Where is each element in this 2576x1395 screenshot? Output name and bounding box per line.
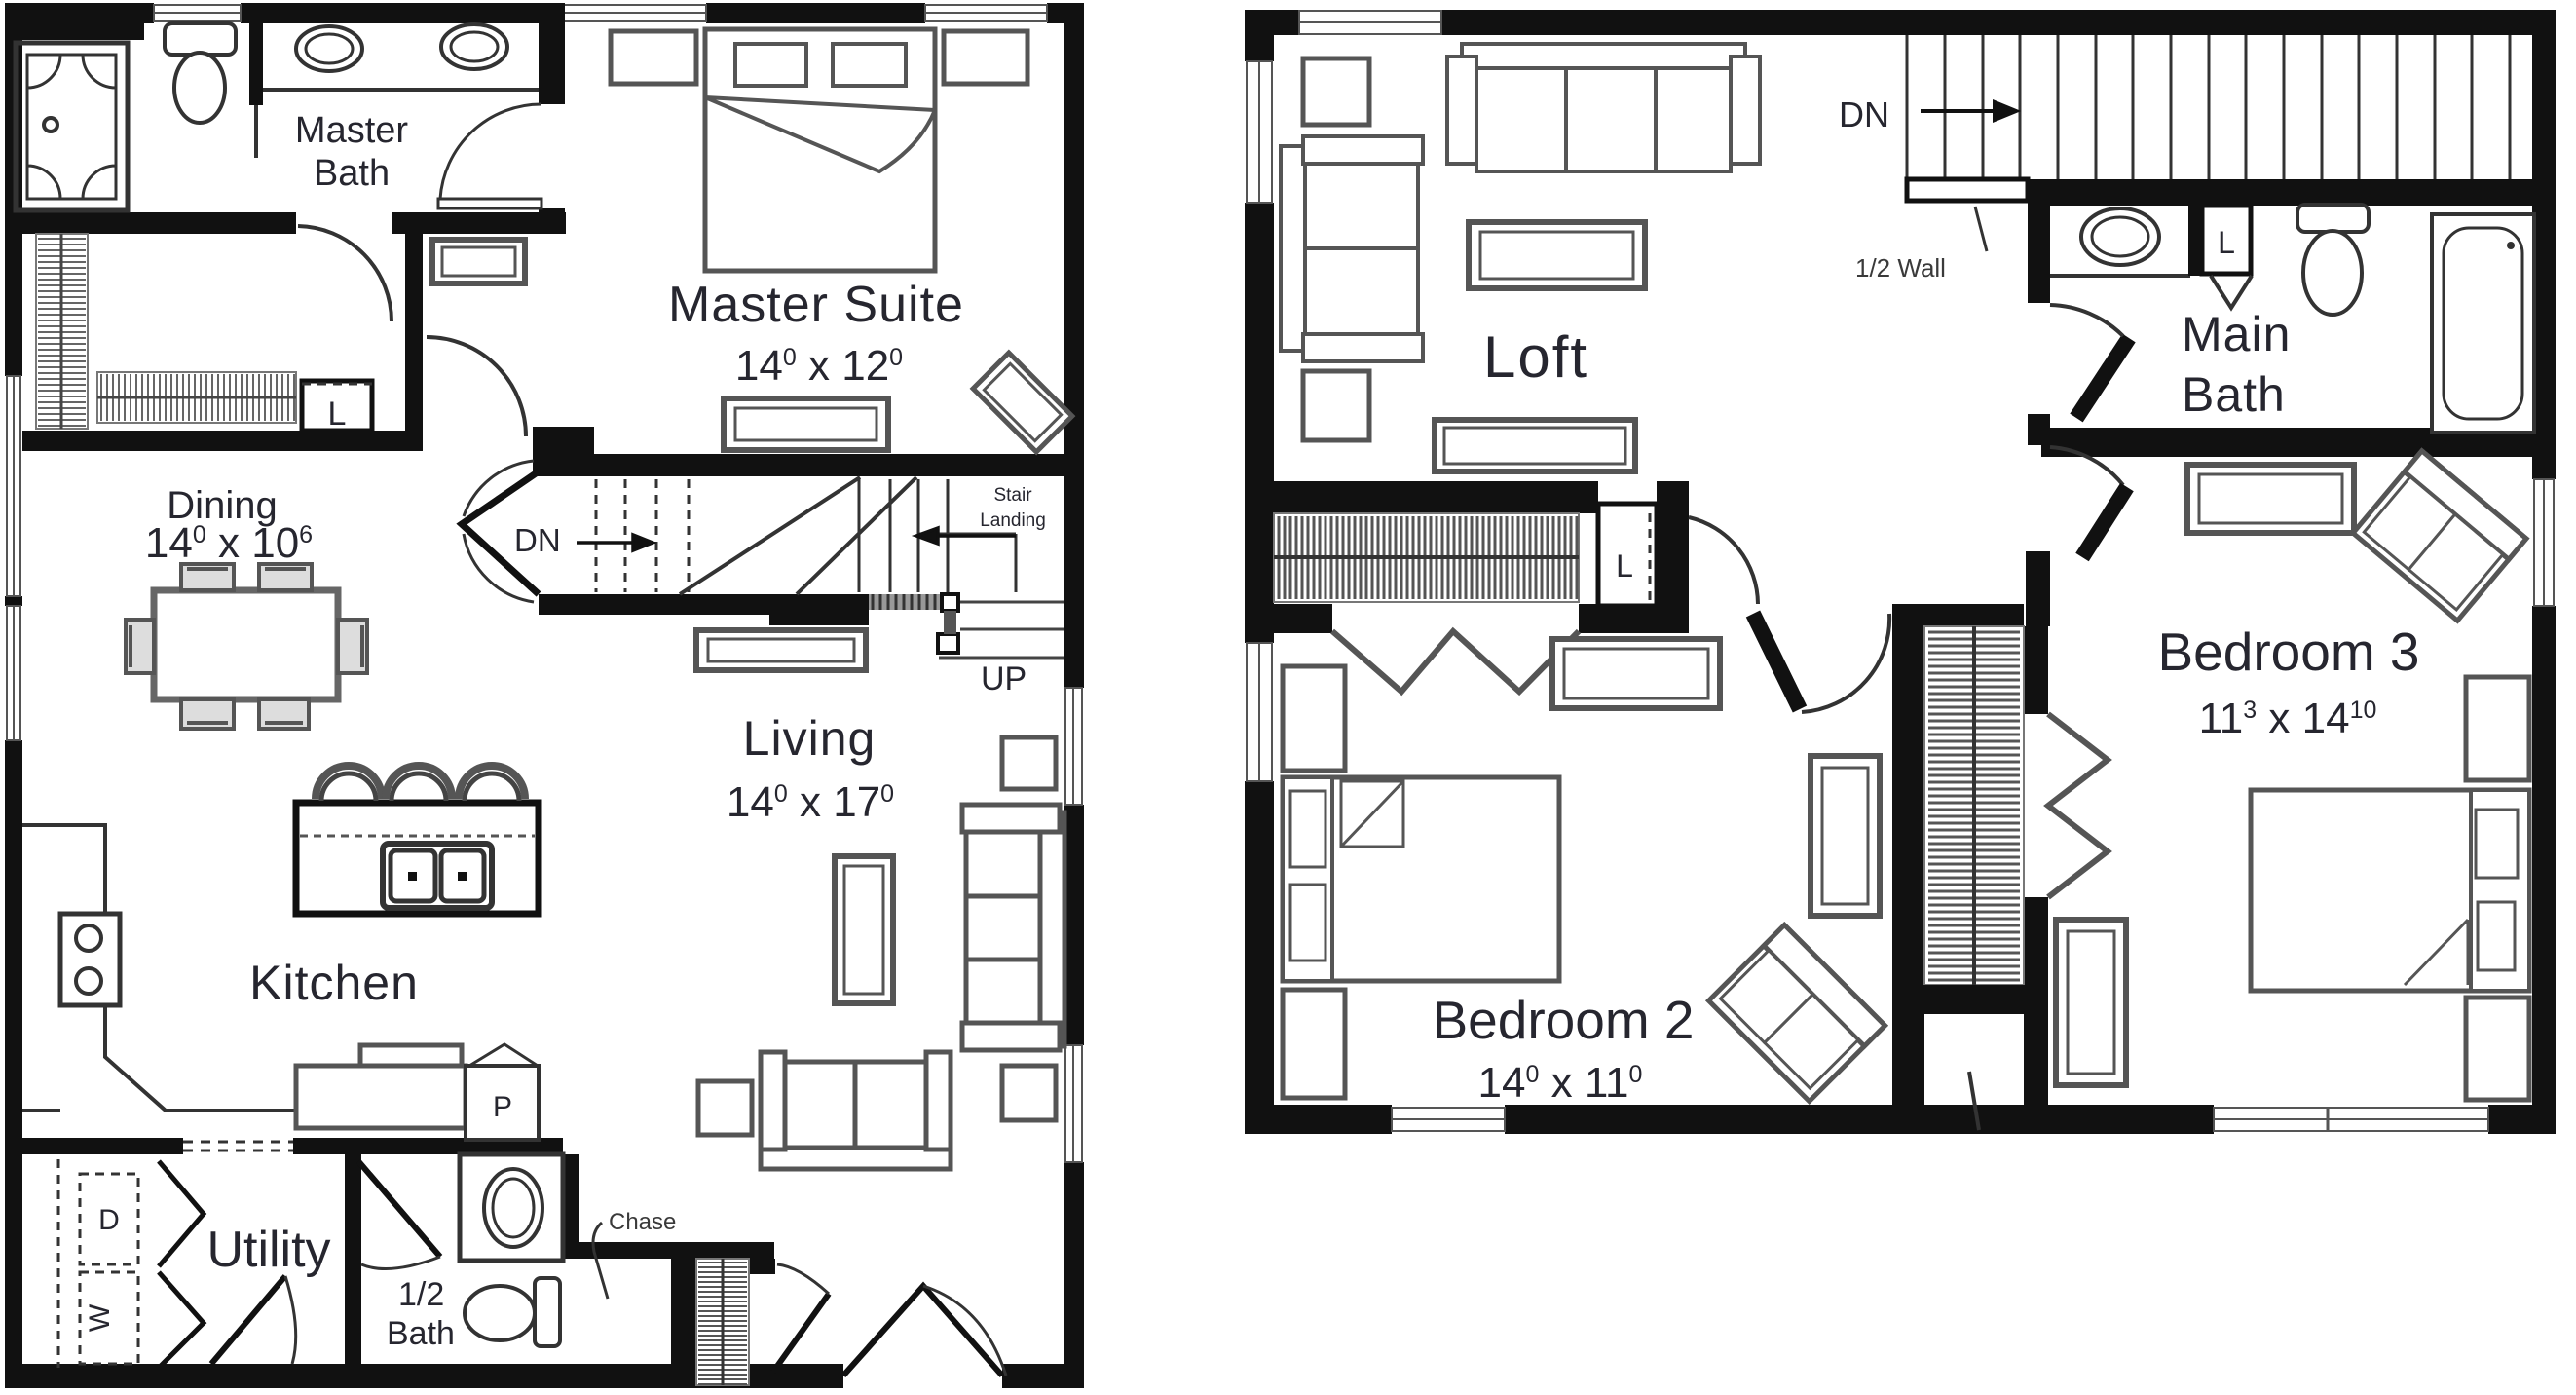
svg-text:Loft: Loft: [1483, 324, 1588, 390]
svg-text:Bath: Bath: [2182, 367, 2286, 422]
svg-text:Chase: Chase: [609, 1209, 676, 1235]
svg-text:140 x 110: 140 x 110: [1478, 1059, 1643, 1107]
svg-text:L: L: [328, 396, 347, 433]
svg-text:DN: DN: [514, 522, 561, 558]
svg-text:140 x 170: 140 x 170: [727, 778, 894, 826]
svg-text:1/2 Wall: 1/2 Wall: [1855, 253, 1946, 283]
svg-text:DN: DN: [1839, 94, 1889, 134]
svg-text:Landing: Landing: [980, 510, 1046, 531]
svg-text:W: W: [84, 1303, 116, 1332]
svg-text:Bedroom 3: Bedroom 3: [2157, 622, 2419, 682]
svg-text:Master Suite: Master Suite: [668, 277, 964, 333]
svg-text:Kitchen: Kitchen: [249, 956, 419, 1010]
svg-text:P: P: [493, 1091, 512, 1123]
svg-text:D: D: [98, 1204, 120, 1236]
svg-text:L: L: [1616, 548, 1633, 584]
svg-text:Bath: Bath: [314, 153, 390, 194]
svg-text:Living: Living: [743, 711, 877, 766]
svg-text:Bath: Bath: [387, 1315, 455, 1352]
svg-text:Master: Master: [295, 110, 408, 151]
svg-text:140 x 106: 140 x 106: [145, 519, 313, 567]
svg-text:Utility: Utility: [206, 1222, 330, 1278]
svg-text:Main: Main: [2182, 307, 2291, 361]
svg-text:140 x 120: 140 x 120: [735, 342, 903, 390]
svg-text:L: L: [2218, 225, 2235, 260]
svg-text:Stair: Stair: [993, 485, 1032, 506]
svg-text:Bedroom 2: Bedroom 2: [1432, 990, 1694, 1050]
svg-text:1/2: 1/2: [398, 1276, 444, 1313]
svg-text:UP: UP: [981, 660, 1027, 697]
